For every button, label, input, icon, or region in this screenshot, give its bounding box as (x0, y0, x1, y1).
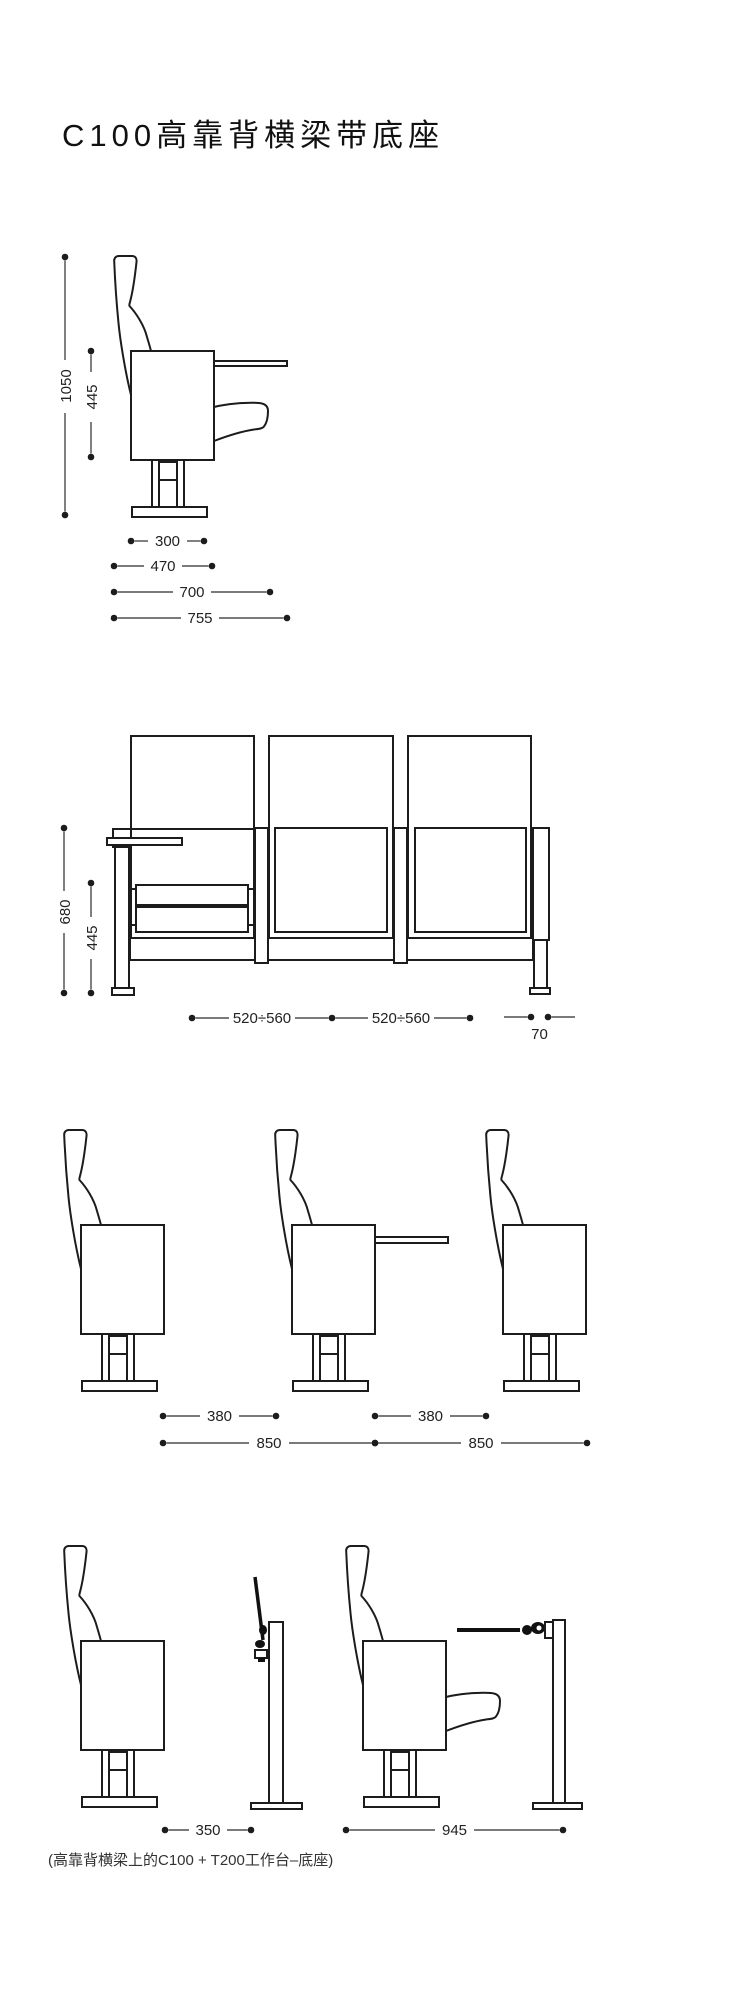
seat-front-2 (275, 828, 387, 932)
dim-label-seat-pitch-2: 520÷560 (372, 1010, 430, 1027)
cross-beam (130, 938, 533, 960)
stand-post (553, 1620, 565, 1803)
workstation-view: 350 945 (64, 1546, 582, 1839)
dim-label-clearance-2: 380 (418, 1408, 443, 1425)
seat-divider-2 (394, 828, 407, 963)
dim-seat-depth: 470 (111, 558, 216, 575)
dim-label-seat-height: 445 (84, 384, 101, 409)
dim-label-beam-height: 680 (57, 899, 74, 924)
dim-seat-pitch: 520÷560 520÷560 (189, 1010, 474, 1027)
dim-row-pitch-1: 850 (160, 1435, 379, 1452)
tablet-open (457, 1628, 520, 1632)
dim-label-overall-depth: 755 (187, 610, 212, 627)
chair-side-profile (486, 1130, 586, 1391)
dim-label-open-distance: 945 (442, 1822, 467, 1839)
chair-side-profile (275, 1130, 375, 1391)
dim-base-width: 300 (128, 533, 208, 550)
technical-drawing: 1050 445 300 470 (0, 0, 750, 2008)
chair-side-profile (114, 256, 214, 517)
tablet-arm (214, 361, 287, 366)
dim-front-seat-height: 445 (84, 880, 101, 997)
spec-sheet-page: C100高靠背横梁带底座 1050 (0, 0, 750, 2008)
chair-side-profile (64, 1546, 164, 1807)
dim-folded-distance: 350 (162, 1822, 255, 1839)
dim-label-total-height: 1050 (58, 369, 75, 402)
folded-seat-flap (446, 1693, 500, 1731)
tablet-top-front (107, 838, 182, 845)
dim-label-base-width: 300 (155, 533, 180, 550)
dim-label-row-pitch-2: 850 (468, 1435, 493, 1452)
seat-divider-1 (255, 828, 268, 963)
end-panel (533, 828, 549, 940)
side-elevation-view: 1050 445 300 470 (58, 254, 290, 627)
dim-total-height: 1050 (58, 254, 75, 519)
stand-base (251, 1803, 302, 1809)
row-spacing-view: 380 380 850 850 (64, 1130, 590, 1452)
dim-seat-height: 445 (84, 348, 101, 461)
dim-open-distance: 945 (343, 1822, 567, 1839)
dim-depth-open: 700 (111, 584, 274, 601)
dim-label-end-offset: 70 (531, 1026, 548, 1043)
dim-overall-depth: 755 (111, 610, 291, 627)
folded-seat-front-top (136, 885, 248, 905)
t200-stand-folded (251, 1577, 302, 1809)
tablet-upright (115, 845, 129, 988)
stand-base (533, 1803, 582, 1809)
dim-beam-height: 680 (57, 825, 74, 997)
dim-label-seat-depth: 470 (150, 558, 175, 575)
dim-clearance-2: 380 (372, 1408, 490, 1425)
dim-label-front-seat-height: 445 (84, 925, 101, 950)
stand-post (269, 1622, 283, 1803)
dim-label-depth-open: 700 (179, 584, 204, 601)
dim-row-pitch-2: 850 (372, 1435, 591, 1452)
right-foot (530, 988, 550, 994)
folded-seat-flap (214, 403, 268, 441)
dim-label-folded-distance: 350 (195, 1822, 220, 1839)
front-elevation-view: 680 445 520÷560 520÷560 70 (57, 736, 575, 1043)
dim-label-clearance-1: 380 (207, 1408, 232, 1425)
caption: (高靠背横梁上的C100 + T200工作台–底座) (48, 1849, 333, 1870)
tablet-arm (375, 1237, 448, 1243)
dim-label-seat-pitch-1: 520÷560 (233, 1010, 291, 1027)
dim-end-offset: 70 (504, 1014, 575, 1043)
chair-side-profile (346, 1546, 446, 1807)
chair-side-profile (64, 1130, 164, 1391)
folded-seat-front-bottom (136, 907, 248, 932)
dim-label-row-pitch-1: 850 (256, 1435, 281, 1452)
end-leg (534, 940, 547, 988)
seat-front-3 (415, 828, 526, 932)
dim-clearance-1: 380 (160, 1408, 280, 1425)
left-foot (112, 988, 134, 995)
